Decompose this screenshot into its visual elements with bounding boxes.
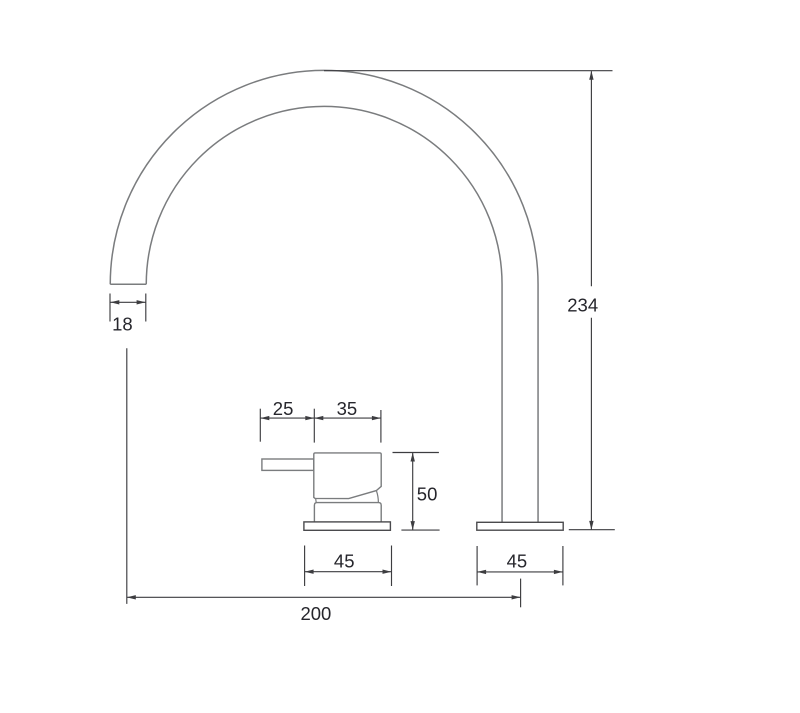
svg-text:18: 18 <box>112 314 133 335</box>
svg-text:35: 35 <box>337 398 358 419</box>
svg-text:200: 200 <box>300 603 331 624</box>
svg-text:45: 45 <box>334 550 355 571</box>
svg-text:50: 50 <box>417 483 438 504</box>
svg-text:45: 45 <box>507 551 528 572</box>
svg-text:234: 234 <box>567 295 598 316</box>
svg-text:25: 25 <box>273 398 294 419</box>
